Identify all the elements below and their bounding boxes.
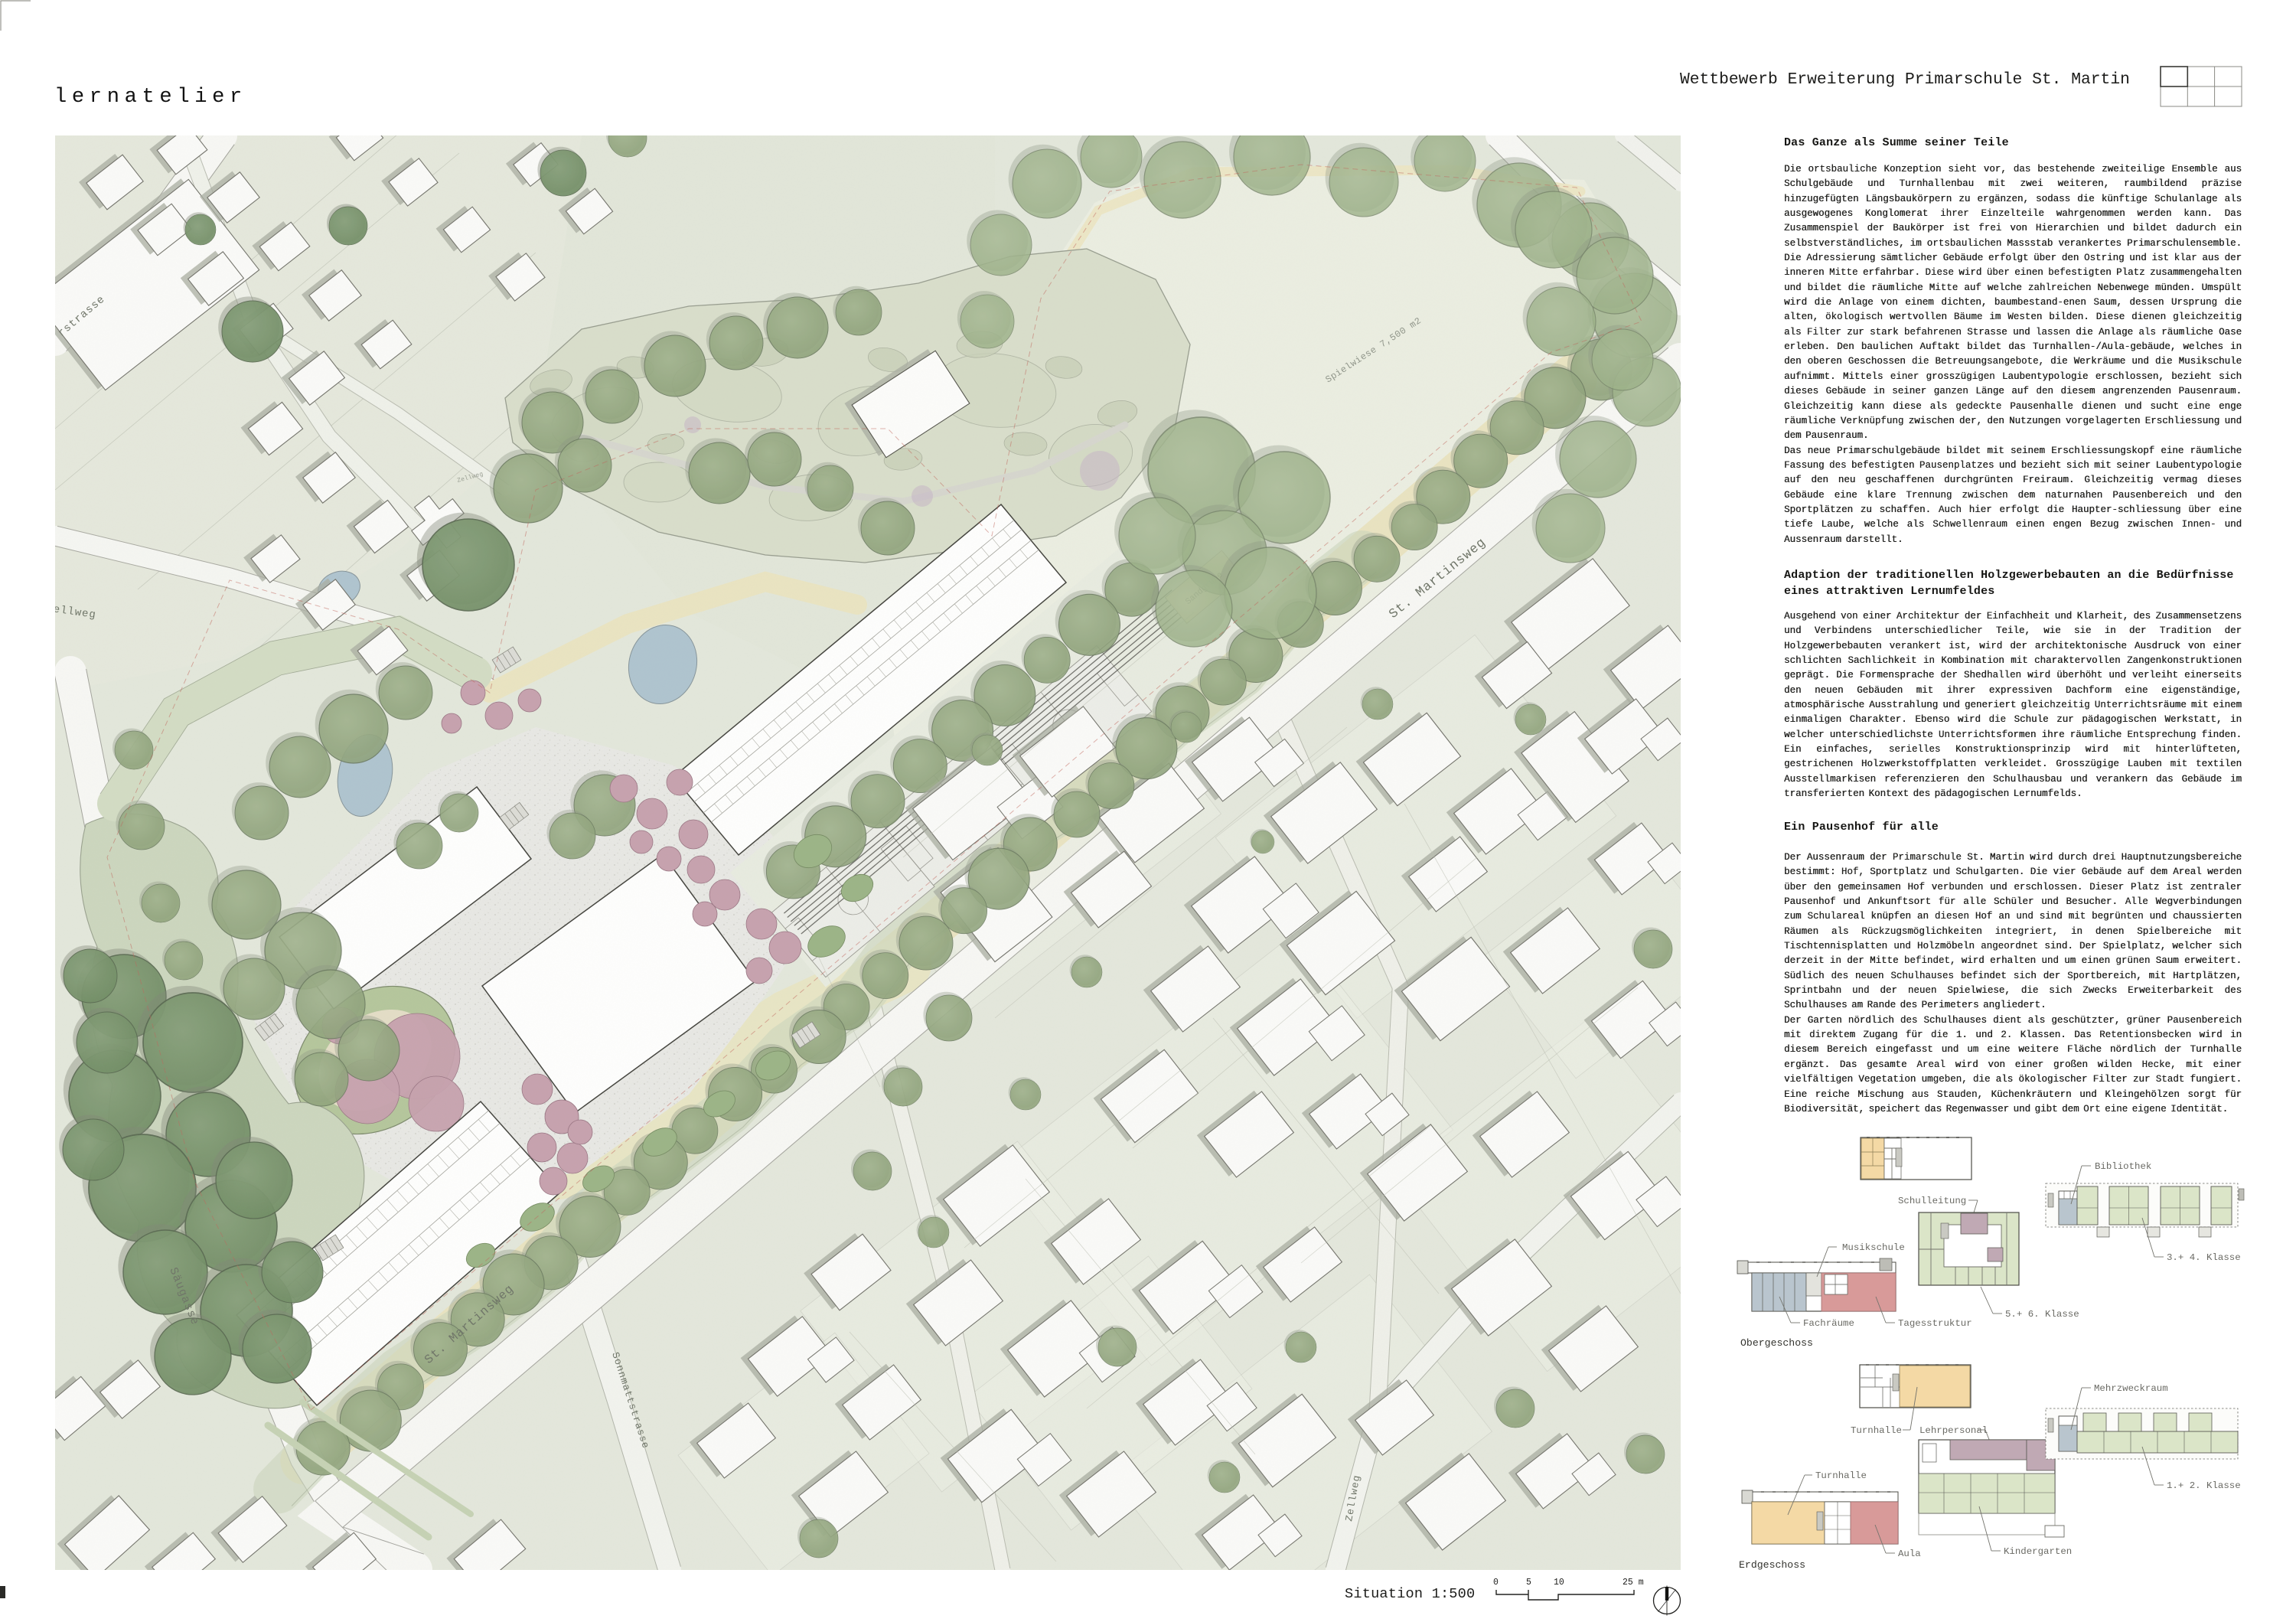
svg-text:Fachräume: Fachräume [1803, 1318, 1854, 1329]
svg-text:1.+ 2. Klasse: 1.+ 2. Klasse [2167, 1480, 2241, 1491]
svg-text:Musikschule: Musikschule [1842, 1242, 1905, 1253]
svg-text:Tagesstruktur: Tagesstruktur [1898, 1318, 1972, 1329]
svg-text:25 m: 25 m [1623, 1578, 1644, 1588]
svg-text:Erdgeschoss: Erdgeschoss [1739, 1559, 1805, 1571]
svg-text:3.+ 4. Klasse: 3.+ 4. Klasse [2167, 1252, 2241, 1263]
svg-text:Schulleitung: Schulleitung [1898, 1196, 1966, 1206]
svg-text:Lehrpersonal: Lehrpersonal [1919, 1425, 1988, 1436]
svg-text:Turnhalle: Turnhalle [1815, 1470, 1867, 1481]
svg-text:Kindergarten: Kindergarten [2004, 1546, 2072, 1557]
svg-text:Obergeschoss: Obergeschoss [1740, 1337, 1813, 1349]
svg-text:5: 5 [1526, 1578, 1531, 1588]
svg-text:5.+ 6. Klasse: 5.+ 6. Klasse [2005, 1309, 2079, 1320]
svg-text:10: 10 [1554, 1578, 1564, 1588]
svg-text:Aula: Aula [1898, 1549, 1921, 1559]
svg-text:0: 0 [1493, 1578, 1499, 1588]
svg-text:Mehrzweckraum: Mehrzweckraum [2094, 1383, 2168, 1394]
svg-text:Bibliothek: Bibliothek [2095, 1161, 2151, 1172]
svg-text:Turnhalle: Turnhalle [1851, 1425, 1902, 1436]
